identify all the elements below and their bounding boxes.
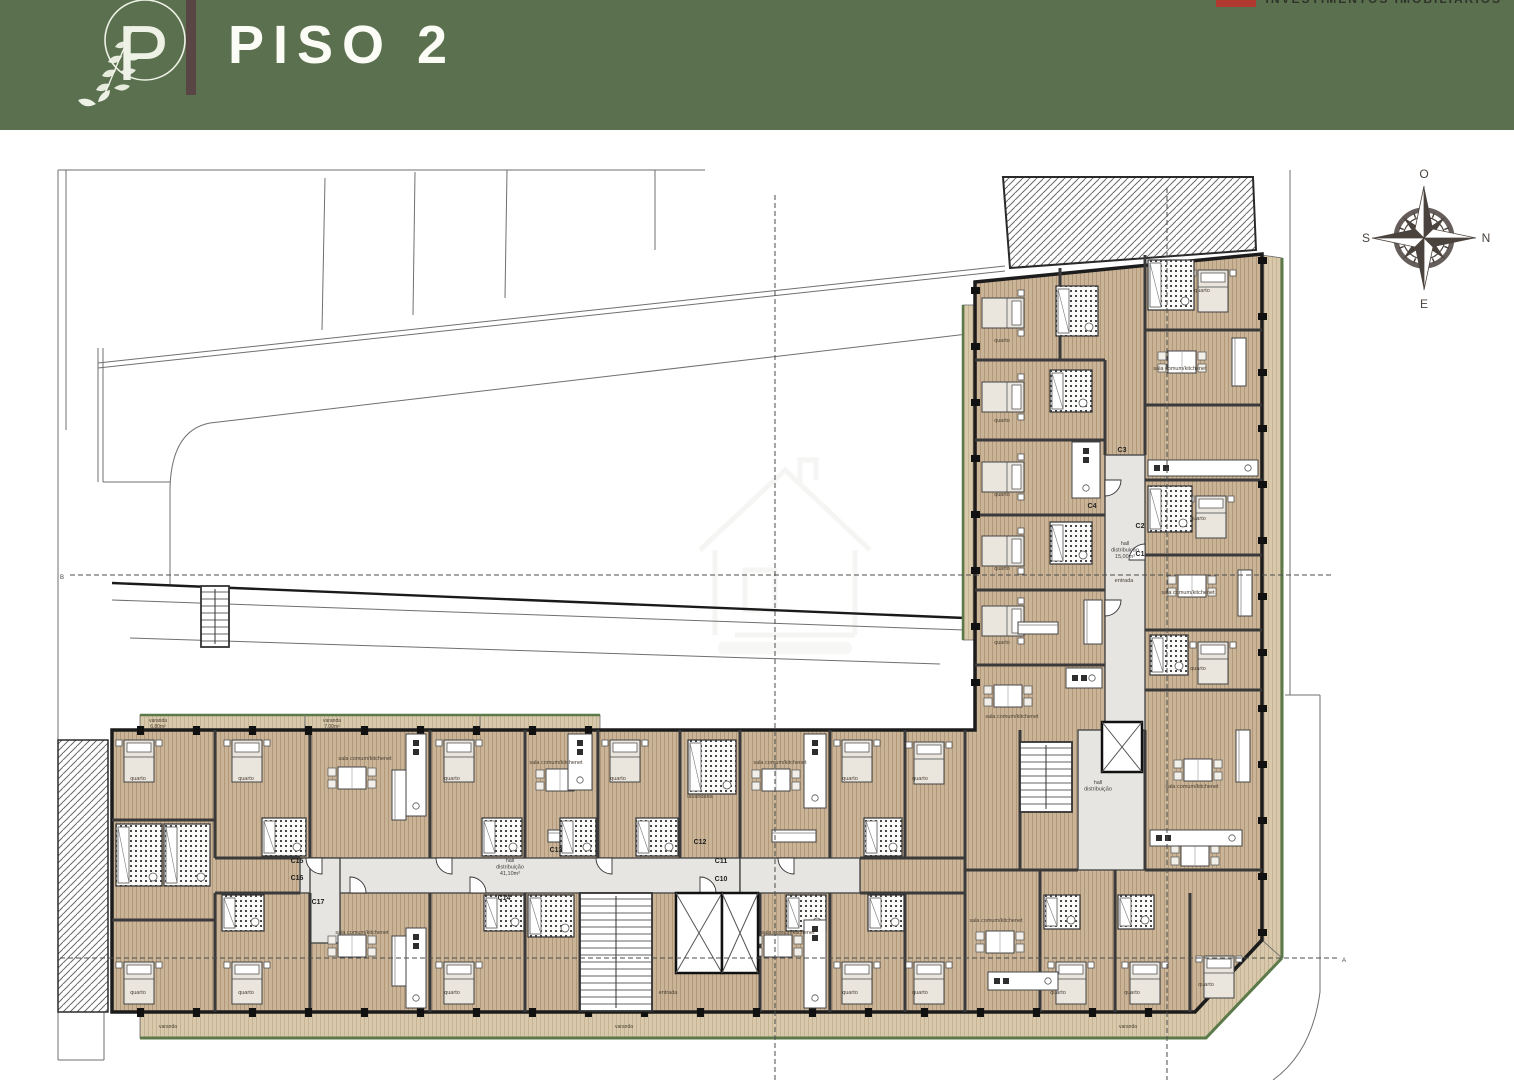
room-label: quarto — [1190, 516, 1206, 522]
facade-pier — [305, 726, 312, 735]
facade-pier — [1258, 761, 1267, 768]
hall-label: distribuição — [496, 865, 524, 871]
site-line — [98, 271, 1005, 368]
site-curve — [170, 423, 210, 487]
plan-area: quartoquartosala comum/kitchenetquartosa… — [0, 130, 1514, 1080]
toilet-icon — [511, 918, 519, 926]
facade-pier — [305, 1008, 312, 1017]
watermark-house-icon — [700, 460, 870, 654]
facade-pier — [971, 343, 980, 350]
facade-pier — [697, 1008, 704, 1017]
kitchen-counter — [1150, 830, 1242, 846]
facade-pier — [1258, 705, 1267, 712]
bathroom — [1150, 635, 1188, 675]
room-label: entrada — [1115, 578, 1135, 584]
bathroom — [164, 824, 210, 886]
varanda-label: varanda — [159, 1024, 177, 1030]
site-line — [98, 266, 1005, 363]
facade-pier — [921, 1008, 928, 1017]
bathroom — [868, 895, 904, 931]
staircase-icon — [201, 586, 229, 647]
unit-code-label: C2 — [1136, 523, 1145, 530]
section-marker-label: B — [60, 575, 64, 581]
varanda-area-label: 6,80m² — [150, 724, 166, 730]
hall-label: hall — [506, 858, 515, 864]
room-label: sala comum/kitchenet — [753, 760, 807, 766]
logo-leaf-cluster-icon — [78, 90, 110, 106]
kitchen-counter — [988, 972, 1058, 990]
sofa-icon — [1236, 730, 1250, 782]
room-label: quarto — [994, 418, 1010, 424]
hall-label: 41,10m² — [500, 871, 520, 877]
toilet-icon — [149, 873, 157, 881]
room-label: quarto — [444, 776, 460, 782]
site-line — [505, 170, 507, 298]
hob-icon — [1156, 835, 1162, 841]
kitchen-counter — [804, 734, 826, 808]
kitchen-counter — [1072, 442, 1100, 498]
unit-code-label: C1 — [1136, 551, 1145, 558]
hob-icon — [1165, 835, 1171, 841]
partner-mark-icon — [1216, 0, 1256, 7]
compass-letter-left: S — [1362, 231, 1370, 245]
room-label: quarto — [994, 338, 1010, 344]
unit-code-label: C16 — [291, 875, 304, 882]
toilet-icon — [561, 924, 569, 932]
facade-pier — [971, 399, 980, 406]
toilet-icon — [889, 843, 897, 851]
hob-icon — [812, 749, 818, 755]
sofa-icon — [1018, 622, 1058, 634]
facade-pier — [1258, 817, 1267, 824]
kitchen-counter — [1066, 668, 1102, 688]
sofa-icon — [392, 936, 406, 986]
bathroom — [1044, 895, 1080, 929]
facade-pier — [753, 1008, 760, 1017]
section-marker-label: A — [1342, 958, 1346, 964]
toilet-icon — [1141, 916, 1149, 924]
room-label: quarto — [994, 566, 1010, 572]
floorplan-page: P PISO 2 INVESTIMENTOS IMOBILIÁRIOS — [0, 0, 1514, 1080]
bathroom — [1118, 895, 1154, 929]
toilet-icon — [197, 873, 205, 881]
brand-logo: P — [40, 0, 210, 112]
bathroom — [864, 818, 902, 856]
room-label: quarto — [1050, 990, 1066, 996]
room-label: quarto — [842, 776, 858, 782]
bathroom — [688, 740, 736, 794]
facade-pier — [809, 1008, 816, 1017]
sofa-icon — [1238, 570, 1252, 616]
unit-code-label: C10 — [715, 876, 728, 883]
unit-code-label: C14 — [498, 895, 511, 902]
unit-code-label: C17 — [312, 899, 325, 906]
hob-icon — [994, 978, 1000, 984]
facade-pier — [1258, 257, 1267, 264]
watermark — [700, 460, 870, 654]
facade-pier — [971, 567, 980, 574]
bathroom — [1050, 522, 1092, 564]
facade-pier — [971, 511, 980, 518]
facade-pier — [193, 726, 200, 735]
room-label: quarto — [912, 990, 928, 996]
bathroom — [482, 818, 522, 856]
facade-pier — [473, 726, 480, 735]
courtyard-edge-line — [112, 583, 965, 618]
unit-code-label: C15 — [291, 858, 304, 865]
facade-pier — [977, 1008, 984, 1017]
facade-pier — [971, 679, 980, 686]
facade-pier — [361, 726, 368, 735]
unit-code-label: C13 — [550, 847, 563, 854]
sofa-icon — [1084, 600, 1102, 644]
facade-pier — [1258, 593, 1267, 600]
bathroom — [1148, 260, 1194, 310]
facade-pier — [1089, 1008, 1096, 1017]
toilet-icon — [1079, 551, 1087, 559]
room-label: quarto — [130, 776, 146, 782]
room-label: quarto — [1190, 666, 1206, 672]
room-label: quarto — [238, 776, 254, 782]
toilet-icon — [1079, 399, 1087, 407]
elevator-icon — [722, 893, 758, 973]
facade-pier — [361, 1008, 368, 1017]
floor-plan-drawing: quartoquartosala comum/kitchenetquartosa… — [0, 130, 1514, 1080]
facade-pier — [249, 1008, 256, 1017]
hob-icon — [1083, 457, 1089, 463]
sofa-icon — [772, 830, 816, 842]
room-label: sala comum/kitchenet — [985, 714, 1039, 720]
facade-pier — [1258, 425, 1267, 432]
compass-letter-right: N — [1482, 231, 1491, 245]
bathroom — [116, 824, 162, 886]
room-label: quarto — [1198, 982, 1214, 988]
facade-pier — [1258, 369, 1267, 376]
header-divider — [186, 0, 196, 95]
facade-pier — [529, 1008, 536, 1017]
hall-label: hall — [1094, 780, 1103, 786]
hob-icon — [812, 740, 818, 746]
hob-icon — [577, 740, 583, 746]
logo-letter: P — [117, 9, 169, 97]
room-label: sala comum/kitchenet — [1165, 784, 1219, 790]
facade-pier — [473, 1008, 480, 1017]
hob-icon — [1003, 978, 1009, 984]
facade-pier — [137, 726, 144, 735]
toilet-icon — [723, 781, 731, 789]
toilet-icon — [1085, 323, 1093, 331]
toilet-icon — [509, 843, 517, 851]
toilet-icon — [1175, 662, 1183, 670]
kitchen-counter — [406, 928, 426, 1008]
corridor — [740, 858, 860, 893]
hob-icon — [413, 740, 419, 746]
facade-pier — [971, 455, 980, 462]
bathroom — [1050, 370, 1092, 412]
toilet-icon — [251, 918, 259, 926]
unit-code-label: C11 — [715, 858, 728, 865]
hob-icon — [1163, 465, 1169, 471]
staircase-icon — [580, 893, 652, 1011]
room-label: quarto — [238, 990, 254, 996]
bathroom — [636, 818, 678, 856]
room-label: quarto — [842, 990, 858, 996]
hob-icon — [1083, 448, 1089, 454]
hob-icon — [1154, 465, 1160, 471]
toilet-icon — [665, 843, 673, 851]
varanda-label: varanda — [1119, 1024, 1137, 1030]
bathroom — [222, 895, 264, 931]
compass-rose: ONSE — [1362, 167, 1490, 311]
facade-pier — [193, 1008, 200, 1017]
page-header: P PISO 2 INVESTIMENTOS IMOBILIÁRIOS — [0, 0, 1514, 130]
hall-label: distribuição — [1084, 787, 1112, 793]
facade-pier — [1258, 481, 1267, 488]
room-label: quarto — [1194, 288, 1210, 294]
room-label: sala comum/kitchenet — [1161, 590, 1215, 596]
hob-icon — [413, 934, 419, 940]
hob-icon — [413, 749, 419, 755]
page-title: PISO 2 — [228, 14, 456, 76]
staircase-icon — [1020, 742, 1072, 812]
room-label: quarto — [610, 776, 626, 782]
facade-pier — [1258, 873, 1267, 880]
facade-pier — [865, 1008, 872, 1017]
room-label: sala comum/kitchenet — [761, 930, 815, 936]
facade-pier — [1258, 313, 1267, 320]
varanda-label: varanda — [615, 1024, 633, 1030]
varanda-area-label: 7,00m² — [324, 724, 340, 730]
elevator-icon — [1102, 722, 1142, 772]
site-line — [322, 178, 325, 330]
partner-name: INVESTIMENTOS IMOBILIÁRIOS — [1266, 0, 1502, 6]
facade-pier — [417, 1008, 424, 1017]
room-label: quarto — [994, 492, 1010, 498]
toilet-icon — [293, 843, 301, 851]
kitchen-counter — [1148, 460, 1258, 476]
room-label: entrada — [659, 990, 679, 996]
room-label: quarto — [130, 990, 146, 996]
balcony-deck-east — [1262, 255, 1282, 958]
room-label: sala comum/kitchenet — [335, 930, 389, 936]
room-label: sala comum/kitchenet — [969, 918, 1023, 924]
kitchen-counter — [406, 734, 426, 816]
unit-code-label: C12 — [694, 839, 707, 846]
hob-icon — [1072, 675, 1078, 681]
hall-label: 15,00m² — [1115, 554, 1135, 560]
partner-logo: INVESTIMENTOS IMOBILIÁRIOS — [1216, 0, 1502, 8]
room-label: sala comum/kitchenet — [529, 760, 583, 766]
corridor — [1105, 455, 1145, 730]
unit-code-label: C4 — [1088, 503, 1097, 510]
bathroom — [1056, 286, 1098, 336]
facade-pier — [1145, 1008, 1152, 1017]
bathroom — [528, 895, 574, 937]
room-label: quarto — [444, 990, 460, 996]
unit-code-label: C3 — [1118, 447, 1127, 454]
bathroom — [1148, 486, 1192, 532]
room-label: lavandaria — [687, 794, 713, 800]
bathroom — [560, 818, 596, 856]
hob-icon — [577, 749, 583, 755]
compass-letter-top: O — [1419, 167, 1428, 181]
sofa-icon — [392, 770, 406, 820]
neighbor-building-north — [1003, 177, 1256, 268]
bathroom — [262, 818, 306, 856]
toilet-icon — [1179, 519, 1187, 527]
compass-letter-bottom: E — [1420, 297, 1428, 311]
facade-pier — [249, 726, 256, 735]
facade-pier — [1258, 929, 1267, 936]
facade-pier — [971, 287, 980, 294]
toilet-icon — [1067, 916, 1075, 924]
room-label: sala comum/kitchenet — [1153, 366, 1207, 372]
room-label: quarto — [1124, 990, 1140, 996]
site-curve — [1273, 992, 1320, 1080]
toilet-icon — [1181, 297, 1189, 305]
hall-label: hall — [1121, 541, 1130, 547]
hob-icon — [1081, 675, 1087, 681]
facade-pier — [529, 726, 536, 735]
room-label: sala comum/kitchenet — [338, 756, 392, 762]
facade-pier — [137, 1008, 144, 1017]
facade-pier — [1033, 1008, 1040, 1017]
facade-pier — [971, 623, 980, 630]
site-line — [112, 600, 965, 630]
toilet-icon — [891, 918, 899, 926]
balcony-strip-west — [963, 305, 975, 640]
sofa-icon — [1232, 338, 1246, 386]
facade-pier — [1258, 537, 1267, 544]
elevator-icon — [676, 893, 722, 973]
hob-icon — [413, 943, 419, 949]
neighbor-building-west — [58, 740, 108, 1012]
site-line — [413, 172, 415, 315]
room-label: quarto — [994, 640, 1010, 646]
toilet-icon — [583, 843, 591, 851]
room-label: quarto — [912, 776, 928, 782]
facade-pier — [1258, 649, 1267, 656]
